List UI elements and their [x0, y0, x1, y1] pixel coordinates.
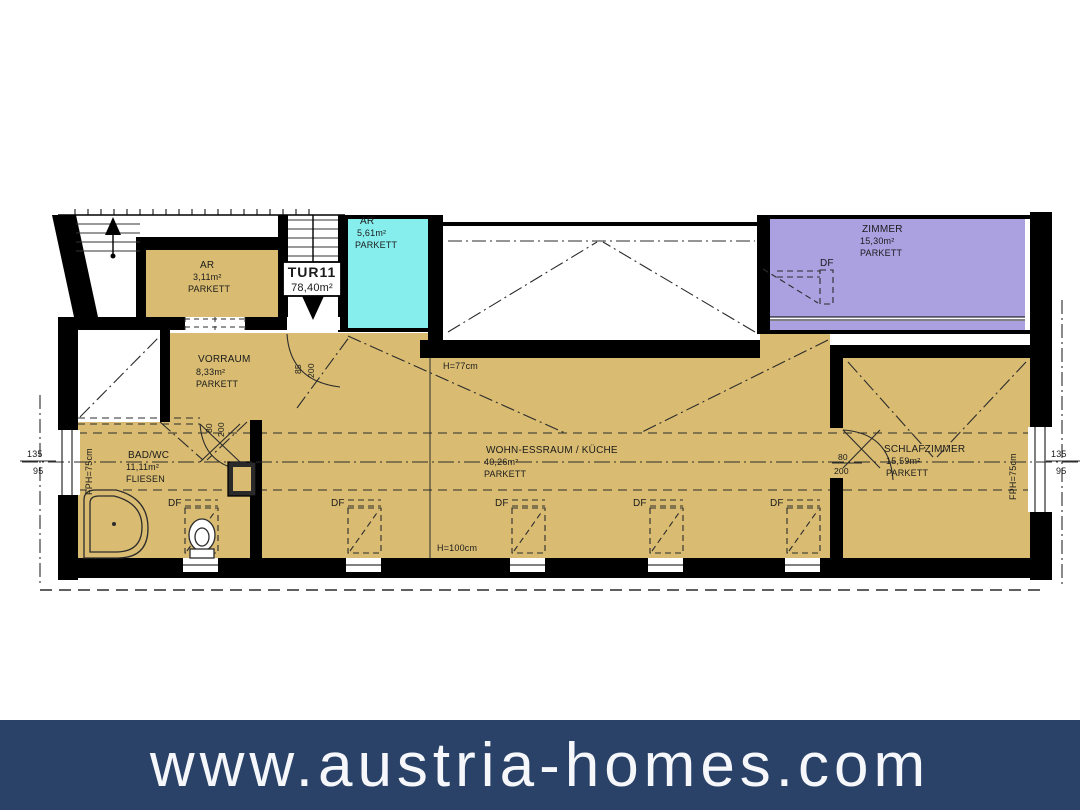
room-vorraum-floor: PARKETT — [196, 379, 239, 389]
room-badwc-name: BAD/WC — [128, 450, 169, 461]
website-banner: www.austria-homes.com — [0, 720, 1080, 810]
door-badwc-width: 80 — [204, 423, 214, 433]
df-label: DF — [633, 498, 647, 509]
wall-schlafzimmer-top — [830, 345, 1045, 358]
door-schlafzimmer-height: 200 — [834, 466, 849, 476]
floorplan-page: TUR11 78,40m² 85 200 80 200 80 200 DF DF — [0, 0, 1080, 810]
opening-entrance — [287, 317, 340, 330]
wall-zimmer-top — [757, 215, 1047, 219]
unit-number: TUR11 — [288, 264, 337, 280]
room-ar-top-area: 3,11m² — [193, 272, 222, 282]
floorplan-drawing: TUR11 78,40m² 85 200 80 200 80 200 DF DF — [0, 0, 1080, 720]
room-fill-wohn-right — [760, 334, 830, 422]
parapet-height-right: FPH=75cm — [1008, 453, 1018, 500]
room-schlafzimmer-area: 15,59m² — [886, 456, 920, 466]
room-ar-cyan-floor: PARKETT — [355, 240, 398, 250]
room-vorraum-name: VORRAUM — [198, 354, 251, 365]
toilet-tank — [190, 549, 214, 558]
df-label: DF — [495, 498, 509, 509]
wall-cyan-right — [428, 215, 443, 358]
wall-ar-top — [136, 237, 286, 250]
room-ar-top-name: AR — [200, 260, 214, 271]
df-label: DF — [168, 498, 182, 509]
room-badwc-area: 11,11m² — [126, 462, 159, 472]
room-schlafzimmer-name: SCHLAFZIMMER — [884, 444, 965, 455]
bathtub-drain — [112, 522, 116, 526]
window-right-gap — [1028, 427, 1054, 512]
top-tick-marks — [75, 209, 309, 215]
df-label: DF — [820, 258, 834, 269]
room-wohn-area: 40,26m² — [484, 457, 518, 467]
room-fill-wohn-left — [338, 333, 430, 423]
window-left-dim-height: 95 — [33, 466, 43, 476]
room-zimmer-area: 15,30m² — [860, 236, 894, 246]
wall-ar-left — [136, 237, 146, 317]
wall-zimmer-bottom — [757, 330, 1047, 334]
void-hip-lines — [448, 242, 755, 332]
washbasin-bowl — [233, 467, 251, 491]
room-schlafzimmer-floor: PARKETT — [886, 468, 929, 478]
door-entrance-width: 85 — [293, 364, 303, 374]
room-ar-cyan-area: 5,61m² — [357, 228, 386, 238]
wall-cyan-top — [338, 215, 443, 219]
height-label-77: H=77cm — [443, 361, 478, 371]
outside-roof-diagonal — [80, 334, 162, 417]
room-wohn-floor: PARKETT — [484, 469, 527, 479]
window-right-dim-height: 95 — [1056, 466, 1066, 476]
wall-schlafzimmer-left-upper — [830, 345, 843, 428]
room-vorraum-area: 8,33m² — [196, 367, 225, 377]
stair-up-arrow — [105, 217, 121, 235]
website-url: www.austria-homes.com — [150, 730, 930, 801]
door-entrance-height: 200 — [306, 363, 316, 378]
room-ar-top-floor: PARKETT — [188, 284, 231, 294]
wall-schlafzimmer-left-lower — [830, 478, 843, 558]
df-label: DF — [770, 498, 784, 509]
parapet-height-left: FPH=75cm — [84, 448, 94, 495]
stair-steps-left — [76, 224, 140, 251]
wall-left-upper — [58, 317, 78, 430]
wall-zimmer-left — [757, 215, 770, 334]
door-schlafzimmer-width: 80 — [838, 452, 848, 462]
unit-area: 78,40m² — [291, 282, 333, 294]
room-zimmer-name: ZIMMER — [862, 224, 903, 235]
df-label: DF — [331, 498, 345, 509]
room-fill-schlafzimmer-top — [843, 358, 1030, 422]
wall-cyan-bottom — [338, 328, 443, 332]
room-wohn-name: WOHN-ESSRAUM / KÜCHE — [486, 444, 618, 456]
stair-arrow-dot — [111, 254, 116, 259]
height-label-100: H=100cm — [437, 543, 477, 553]
door-badwc-height: 200 — [216, 422, 226, 437]
room-ar-cyan-name: AR — [360, 216, 374, 227]
wall-right-upper — [1030, 212, 1052, 427]
room-zimmer-floor: PARKETT — [860, 248, 903, 258]
stair-down-arrow — [302, 296, 324, 320]
wall-void-bottom — [420, 340, 760, 358]
wall-left-slanted — [52, 215, 98, 317]
window-left-dim-width: 135 — [27, 449, 43, 459]
room-badwc-floor: FLIESEN — [126, 474, 165, 484]
window-right-dim-width: 135 — [1051, 449, 1067, 459]
wall-vorraum-left — [160, 330, 170, 422]
room-fill-zimmer-strip — [770, 321, 1025, 330]
wall-void-top — [443, 222, 760, 226]
